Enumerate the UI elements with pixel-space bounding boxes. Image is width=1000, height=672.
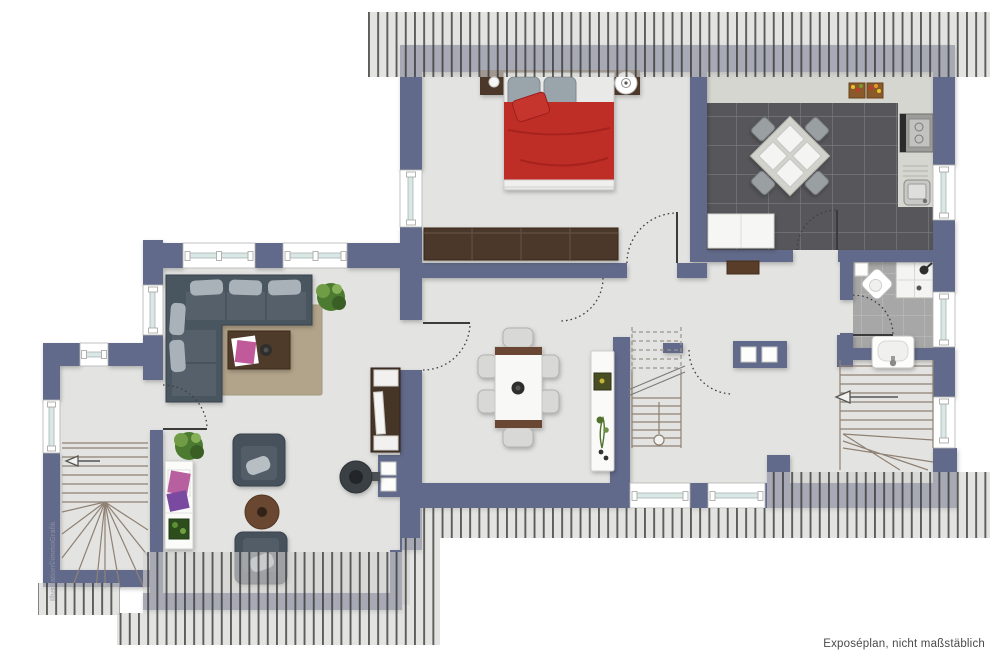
hatch-southwest-upper <box>143 552 440 613</box>
shaft <box>855 263 868 276</box>
floor-plan-drawing <box>0 0 1000 672</box>
chair <box>503 428 533 447</box>
tv-sideboard <box>371 368 400 452</box>
double-bed <box>504 73 614 190</box>
chair <box>540 390 559 413</box>
illustration-credit: Illustration©immoGrafik <box>50 521 57 601</box>
window <box>80 343 108 366</box>
shelf <box>165 461 193 549</box>
window <box>933 292 955 347</box>
window <box>933 165 955 220</box>
chair <box>478 355 497 378</box>
floor-plan: Exposéplan, nicht maßstäblich Illustrati… <box>0 0 1000 672</box>
window <box>143 285 163 335</box>
window <box>43 400 60 453</box>
hatch-north <box>368 12 990 77</box>
window <box>708 483 765 508</box>
coffee-table <box>228 331 290 369</box>
hall-bench <box>727 261 759 274</box>
bedside-lamp <box>489 77 499 87</box>
window <box>933 397 955 448</box>
chair <box>478 390 497 413</box>
stove <box>900 114 933 152</box>
side-table-center <box>257 507 267 517</box>
window <box>183 243 255 268</box>
chair <box>540 355 559 378</box>
window <box>400 170 422 227</box>
washbasin <box>872 336 914 368</box>
hatch-south-center <box>420 508 767 538</box>
disclaimer-text: Exposéplan, nicht maßstäblich <box>823 638 985 650</box>
kitchen-cabinet <box>708 214 774 248</box>
sideboard <box>591 351 614 471</box>
hatch-southeast <box>767 472 990 538</box>
window <box>630 483 690 508</box>
armchair <box>233 434 285 486</box>
hatch-southwest-lower <box>117 613 440 645</box>
wardrobe <box>424 228 618 260</box>
chair <box>503 328 533 347</box>
hatch-step <box>402 538 440 552</box>
window <box>283 243 347 268</box>
